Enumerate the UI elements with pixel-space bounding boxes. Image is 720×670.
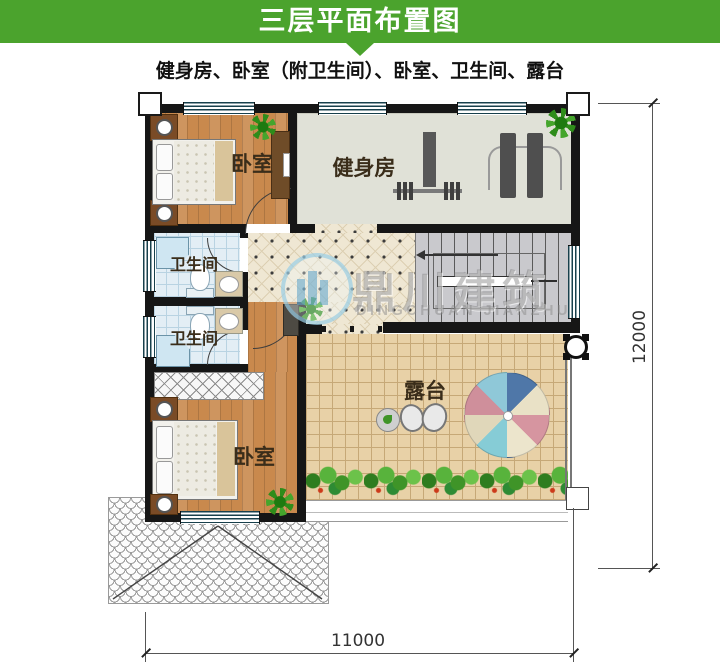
terrace-railing-line	[570, 352, 572, 500]
lamp-icon	[156, 401, 173, 418]
page-title: 三层平面布置图	[0, 0, 720, 43]
dim-label-height: 12000	[630, 307, 650, 367]
dim-label-width: 11000	[308, 631, 408, 651]
wall-terrace-top-left	[306, 324, 322, 334]
sink-basin	[219, 276, 239, 293]
window-gym-2	[457, 102, 527, 115]
corner-marker-top-left	[138, 92, 162, 116]
dim-ext-bottom-right	[573, 508, 574, 662]
treadmill	[527, 133, 543, 198]
terrace-door-post-2	[350, 326, 354, 332]
wardrobe-handle	[283, 153, 290, 177]
window-bedroom-top	[183, 102, 255, 115]
room-label-bath-lower: 卫生间	[162, 325, 226, 349]
plant-icon	[250, 114, 276, 140]
pillow	[156, 173, 173, 200]
window-gym-1	[318, 102, 387, 115]
logo-building-bar	[297, 279, 305, 305]
column-circle	[564, 335, 588, 359]
table-leaf	[383, 415, 392, 424]
umbrella-pole-icon	[503, 411, 513, 421]
wall-bath-divider	[145, 297, 248, 306]
terrace-railing-line	[565, 352, 567, 500]
corner-marker-bottom-right	[566, 487, 589, 510]
blanket	[174, 141, 214, 201]
room-label-gym: 健身房	[330, 152, 398, 182]
wall-stair-bottom	[383, 322, 580, 333]
terrace-edge-line	[306, 512, 568, 513]
terrace-hedge	[306, 460, 568, 500]
pillow	[156, 144, 173, 171]
terrace-edge-strip	[306, 500, 568, 522]
lamp-icon	[156, 119, 173, 136]
window-bedroom-bottom	[180, 511, 260, 524]
logo-building-bar	[320, 280, 328, 305]
pillow	[156, 461, 173, 494]
treadmill	[500, 133, 516, 198]
room-label-bath-upper: 卫生间	[162, 251, 226, 275]
window-bath-upper	[143, 240, 156, 292]
lamp-icon	[156, 496, 173, 513]
nightstand	[150, 114, 178, 141]
terrace-door-post-1	[322, 326, 326, 332]
barbell-plates-left	[397, 182, 413, 200]
plant-icon	[266, 488, 294, 516]
terrace-table	[376, 408, 400, 432]
lamp-icon	[156, 205, 173, 222]
terrace-door-post-3	[378, 326, 382, 332]
header-bar: 三层平面布置图	[0, 0, 720, 43]
column-marker	[563, 334, 589, 360]
corner-marker-top-right	[566, 92, 590, 116]
header-pointer-icon	[346, 43, 374, 56]
window-bath-lower	[143, 316, 156, 358]
gym-door-gap	[315, 224, 377, 233]
pillow	[156, 426, 173, 459]
room-label-bedroom-bottom: 卧室	[224, 441, 284, 471]
nightstand	[150, 397, 178, 422]
room-label-bedroom-top: 卧室	[222, 148, 282, 178]
subtitle: 健身房、卧室（附卫生间）、卧室、卫生间、露台	[0, 56, 720, 83]
logo-building-bar	[308, 271, 317, 305]
blanket	[174, 422, 216, 496]
patio-umbrella	[464, 372, 550, 458]
barbell-plates-right	[444, 182, 460, 200]
dim-line-right	[652, 104, 653, 568]
watermark-brand-en: DINGCHUAN JIANZHU	[356, 303, 571, 319]
room-label-terrace: 露台	[400, 375, 450, 405]
closet	[154, 372, 264, 400]
gym-bench	[423, 132, 436, 187]
watermark-logo-icon	[281, 253, 353, 325]
nightstand	[150, 494, 178, 515]
dim-line-bottom	[145, 653, 573, 654]
